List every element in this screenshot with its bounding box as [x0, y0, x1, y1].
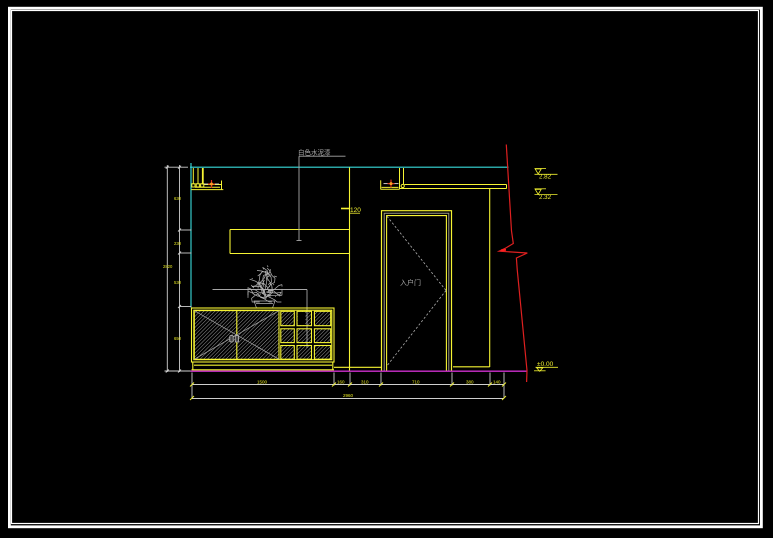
svg-text:140: 140 [493, 380, 501, 385]
svg-text:380: 380 [466, 380, 474, 385]
svg-text:230: 230 [174, 241, 182, 246]
svg-text:入户门: 入户门 [400, 278, 421, 287]
svg-text:2960: 2960 [343, 393, 354, 398]
svg-text:160: 160 [337, 380, 345, 385]
svg-text:710: 710 [412, 380, 420, 385]
svg-text:530: 530 [174, 280, 182, 285]
svg-text:2.82: 2.82 [539, 174, 552, 181]
svg-text:2820: 2820 [163, 264, 173, 269]
svg-text:650: 650 [174, 336, 182, 341]
svg-text:2.32: 2.32 [539, 194, 552, 201]
svg-text:白色水泥漆: 白色水泥漆 [298, 148, 331, 157]
svg-text:1500: 1500 [257, 380, 268, 385]
svg-text:310: 310 [361, 380, 369, 385]
svg-text:630: 630 [174, 196, 182, 201]
